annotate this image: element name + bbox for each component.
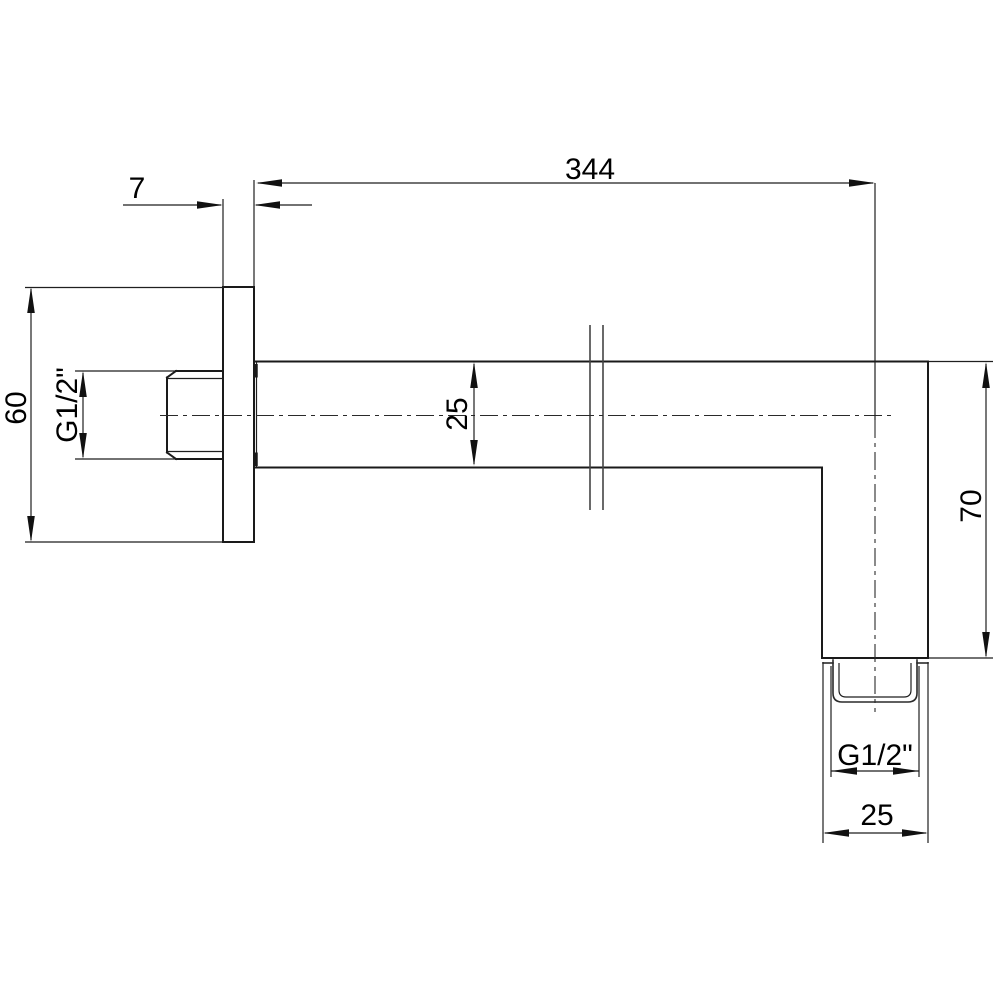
technical-drawing-canvas: 7 344 60 G1/2" 25 70 [0, 0, 1000, 1000]
wall-flange [223, 287, 254, 542]
dim-label-wall-thread: G1/2" [51, 367, 84, 443]
arrowhead [256, 179, 282, 187]
dim-label-flange-size: 60 [0, 391, 33, 424]
arrowhead [470, 440, 478, 466]
dim-label-arm-length: 344 [565, 153, 615, 186]
arrowhead [902, 829, 928, 837]
dim-arm-profile: 25 [441, 362, 478, 466]
arrowhead [982, 362, 990, 388]
dim-label-outlet-width: 25 [860, 799, 893, 832]
dim-label-outlet-thread: G1/2" [837, 739, 913, 772]
shower-arm-side-view: 7 344 60 G1/2" 25 70 [0, 0, 1000, 1000]
arrowhead [27, 516, 35, 542]
break-lines [590, 325, 603, 510]
horizontal-arm [254, 362, 928, 468]
dim-flange-size: 60 [0, 287, 223, 542]
dim-label-flange-thickness: 7 [129, 172, 146, 205]
arrowhead [470, 362, 478, 388]
arrowhead [27, 287, 35, 313]
dim-wall-thread: G1/2" [51, 367, 176, 459]
dim-flange-thickness: 7 [123, 172, 312, 287]
arrowhead [197, 201, 223, 209]
dim-label-arm-profile: 25 [441, 397, 474, 430]
dim-arm-length: 344 [256, 153, 875, 420]
dim-label-drop-length: 70 [955, 489, 988, 522]
arrowhead [982, 632, 990, 658]
arrowhead [823, 829, 849, 837]
arrowhead [849, 179, 875, 187]
arrowhead [254, 201, 280, 209]
dim-drop-length: 70 [928, 362, 993, 659]
